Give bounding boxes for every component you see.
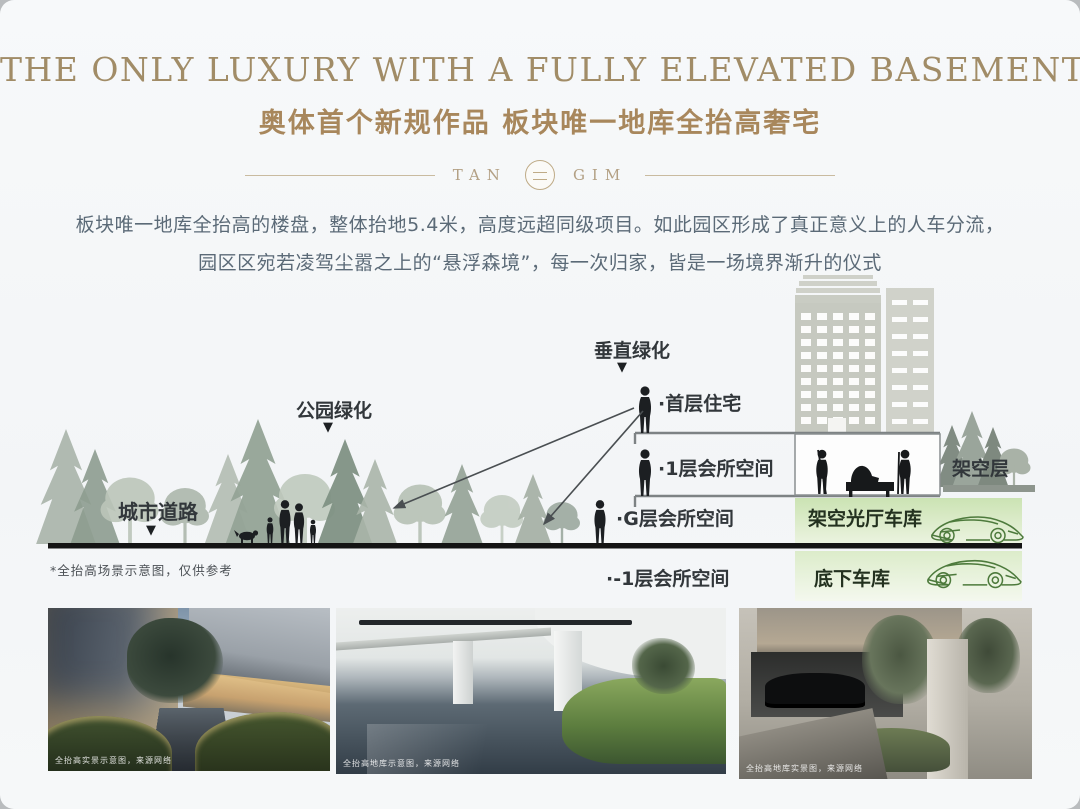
page-subtitle: 奥体首个新规作品 板块唯一地库全抬高奢宅 (0, 101, 1080, 140)
divider-line (645, 175, 835, 176)
header: THE ONLY LUXURY WITH A FULLY ELEVATED BA… (0, 50, 1080, 282)
label-city-road: 城市道路 (118, 496, 198, 525)
photo-garage-hall: 全抬高地库示意图，来源网络 (336, 608, 726, 774)
poster-page: THE ONLY LUXURY WITH A FULLY ELEVATED BA… (0, 0, 1080, 809)
photo-courtyard-dusk: 全抬高实景示意图，来源网络 (48, 608, 330, 771)
label-l1-clubhouse: ·1层会所空间 (658, 454, 773, 481)
section-diagram: 垂直绿化 ▼ 公园绿化 ▼ 城市道路 ▼ ·首层住宅 ·1层会所空间 架空层 ·… (0, 258, 1080, 603)
photo2-pine-tree (632, 638, 694, 694)
photo-garage-entrance: 全抬高地库实景图，来源网络 (739, 608, 1032, 779)
buildings-icon (795, 275, 934, 433)
brand-seal-icon (525, 160, 555, 190)
photo2-column (453, 641, 473, 704)
brand-logo: TAN GIM (0, 160, 1080, 190)
triangle-marker-icon: ▼ (617, 361, 627, 374)
label-underground-garage: 底下车库 (814, 564, 890, 591)
label-b1-clubhouse: ·-1层会所空间 (606, 564, 729, 591)
triangle-marker-icon: ▼ (323, 421, 333, 434)
label-g-clubhouse: ·G层会所空间 (616, 504, 734, 531)
diagram-disclaimer: *全抬高场景示意图，仅供参考 (50, 560, 233, 579)
photo-caption: 全抬高地库实景图，来源网络 (746, 763, 863, 774)
page-title: THE ONLY LUXURY WITH A FULLY ELEVATED BA… (0, 50, 1080, 89)
label-vertical-greening: 垂直绿化 (594, 336, 670, 363)
label-park-greening: 公园绿化 (296, 396, 372, 423)
photo2-garden (562, 678, 726, 764)
photo2-light-slot (359, 620, 632, 625)
park-trees (36, 419, 580, 544)
label-stilt-garage: 架空光厅车库 (808, 504, 922, 531)
photo2-beam (336, 627, 551, 650)
intro-line-1: 板块唯一地库全抬高的楼盘，整体抬地5.4米，高度远超同级项目。如此园区形成了真正… (0, 206, 1080, 244)
photo-caption: 全抬高实景示意图，来源网络 (55, 755, 172, 766)
brand-word-left: TAN (453, 166, 507, 184)
triangle-marker-icon: ▼ (146, 524, 156, 537)
section-diagram-art (0, 258, 1080, 603)
brand-word-right: GIM (573, 166, 627, 184)
label-first-floor-residence: ·首层住宅 (658, 389, 741, 416)
divider-line (245, 175, 435, 176)
label-stilt-floor: 架空层 (952, 454, 1009, 481)
ground-line (48, 543, 1022, 549)
photo3-car (765, 673, 865, 704)
photo1-tree (127, 618, 223, 703)
photo-caption: 全抬高地库示意图，来源网络 (343, 758, 460, 769)
